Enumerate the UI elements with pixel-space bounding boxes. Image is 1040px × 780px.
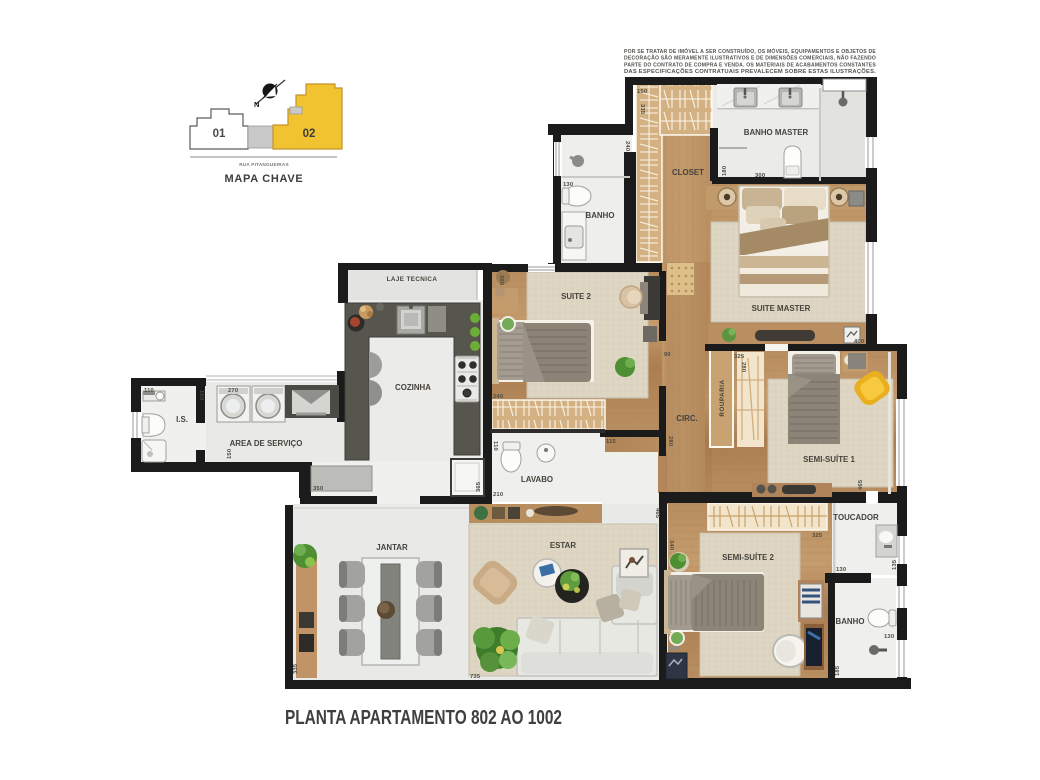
svg-text:BANHO MASTER: BANHO MASTER <box>744 128 809 137</box>
svg-text:185: 185 <box>835 665 841 676</box>
svg-text:RUA PITANGUEIRAS: RUA PITANGUEIRAS <box>239 162 289 167</box>
svg-text:COZINHA: COZINHA <box>395 383 431 392</box>
svg-text:400: 400 <box>854 339 864 345</box>
svg-text:150: 150 <box>198 390 204 400</box>
svg-text:130: 130 <box>836 567 846 573</box>
svg-text:130: 130 <box>884 634 894 640</box>
svg-text:240: 240 <box>493 394 503 400</box>
svg-text:465: 465 <box>654 508 660 519</box>
svg-text:300: 300 <box>498 275 504 285</box>
svg-text:SEMI-SUÍTE 1: SEMI-SUÍTE 1 <box>803 455 855 464</box>
svg-text:180: 180 <box>722 166 728 176</box>
svg-text:AREA DE SERVIÇO: AREA DE SERVIÇO <box>230 439 303 448</box>
svg-text:735: 735 <box>470 674 481 680</box>
svg-text:01: 01 <box>213 128 226 140</box>
svg-text:150: 150 <box>227 449 233 459</box>
svg-text:110: 110 <box>144 388 154 394</box>
svg-text:135: 135 <box>892 559 898 570</box>
svg-text:325: 325 <box>734 354 745 360</box>
svg-text:PLANTA APARTAMENTO 802 AO 1002: PLANTA APARTAMENTO 802 AO 1002 <box>285 707 562 729</box>
svg-text:ESTAR: ESTAR <box>550 541 576 550</box>
svg-text:270: 270 <box>228 388 238 394</box>
svg-text:325: 325 <box>812 533 823 539</box>
svg-text:280: 280 <box>740 362 746 372</box>
svg-text:ROUPARIA: ROUPARIA <box>719 379 726 416</box>
svg-text:LAJE TECNICA: LAJE TECNICA <box>387 276 438 283</box>
svg-text:340: 340 <box>668 540 674 550</box>
svg-text:JANTAR: JANTAR <box>376 543 408 552</box>
svg-text:240: 240 <box>624 141 630 151</box>
svg-text:300: 300 <box>755 173 765 179</box>
svg-text:130: 130 <box>563 182 573 188</box>
svg-text:335: 335 <box>639 104 645 115</box>
svg-text:90: 90 <box>664 352 671 358</box>
svg-text:SUITE MASTER: SUITE MASTER <box>752 304 811 313</box>
svg-text:DECORAÇÃO SÃO MERAMENTE ILUSTR: DECORAÇÃO SÃO MERAMENTE ILUSTRATIVOS E D… <box>624 55 876 62</box>
svg-text:150: 150 <box>637 89 647 95</box>
svg-text:115: 115 <box>606 439 617 445</box>
svg-text:TOUCADOR: TOUCADOR <box>833 513 879 522</box>
svg-text:CLOSET: CLOSET <box>672 168 704 177</box>
svg-text:PARTE DO CONTRATO DE COMPRA E: PARTE DO CONTRATO DE COMPRA E VENDA. OS … <box>624 62 876 68</box>
svg-text:BANHO: BANHO <box>836 617 865 626</box>
svg-text:210: 210 <box>493 492 503 498</box>
svg-text:350: 350 <box>313 486 323 492</box>
svg-text:I.S.: I.S. <box>176 415 188 424</box>
svg-text:POR SE TRATAR DE IMÓVEL A SER: POR SE TRATAR DE IMÓVEL A SER CONSTRUÍDO… <box>624 47 876 55</box>
svg-text:LAVABO: LAVABO <box>521 475 553 484</box>
svg-text:DAS ESPECIFICAÇÕES CONTRATUAIS: DAS ESPECIFICAÇÕES CONTRATUAIS PREVALECE… <box>624 68 876 75</box>
svg-text:BANHO: BANHO <box>586 211 615 220</box>
svg-text:CIRC.: CIRC. <box>676 414 697 423</box>
svg-text:02: 02 <box>303 128 316 140</box>
svg-text:MAPA CHAVE: MAPA CHAVE <box>225 173 304 185</box>
svg-text:SEMI-SUÍTE 2: SEMI-SUÍTE 2 <box>722 553 774 562</box>
svg-text:465: 465 <box>858 479 864 490</box>
svg-text:365: 365 <box>476 481 482 492</box>
svg-text:335: 335 <box>293 663 299 674</box>
svg-text:N: N <box>254 100 259 109</box>
svg-text:280: 280 <box>667 436 673 446</box>
svg-text:110: 110 <box>492 441 498 451</box>
svg-text:SUITE 2: SUITE 2 <box>561 292 591 301</box>
